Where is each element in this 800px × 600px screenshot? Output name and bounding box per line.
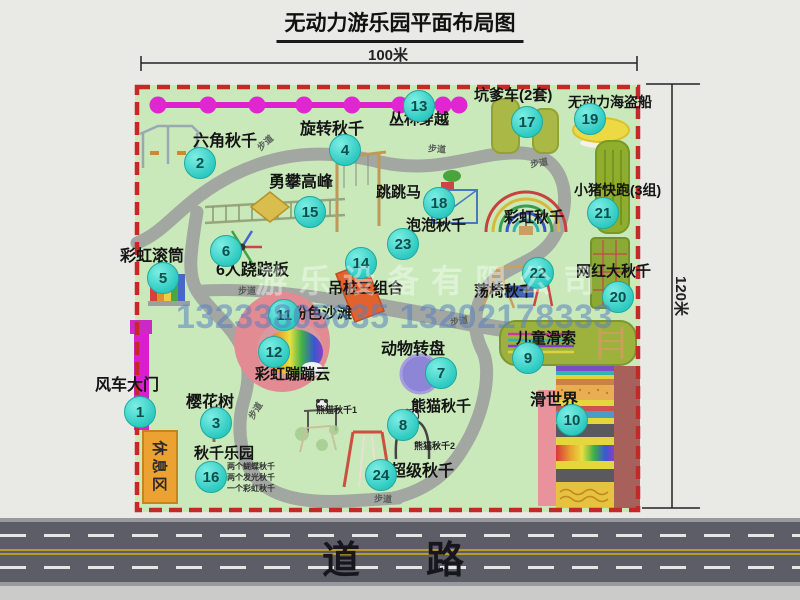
map-marker-16: 16	[195, 461, 227, 493]
swing-note-line: 一个彩虹秋千	[227, 483, 275, 494]
attraction-label: 小猪快跑(3组)	[574, 183, 661, 198]
map-marker-22: 22	[522, 257, 554, 289]
map-marker-10: 10	[556, 404, 588, 436]
map-marker-7: 7	[425, 357, 457, 389]
path-walkway-label: 步道	[529, 155, 549, 171]
map-marker-13: 13	[403, 90, 435, 122]
map-marker-12: 12	[258, 336, 290, 368]
rest-area: 休息区	[142, 430, 178, 504]
attraction-label: 彩虹滚筒	[120, 248, 184, 266]
path-walkway-label: 步道	[245, 399, 266, 421]
map-marker-24: 24	[365, 459, 397, 491]
map-marker-14: 14	[345, 247, 377, 279]
path-walkway-label: 步道	[238, 284, 256, 297]
sub-note: 熊猫秋千2	[414, 439, 455, 452]
attraction-label: 超级秋千	[390, 463, 454, 481]
map-marker-20: 20	[602, 281, 634, 313]
screenshot-stage: 无动力游乐园平面布局图 100米 120米	[0, 0, 800, 600]
attraction-label: 吊桩三组合	[328, 281, 403, 298]
path-walkway-label: 步道	[254, 132, 276, 154]
dimension-height-label: 120米	[671, 276, 692, 316]
map-marker-3: 3	[200, 407, 232, 439]
swing-note-line: 两个蝴蝶秋千	[227, 461, 275, 472]
map-marker-19: 19	[574, 103, 606, 135]
attraction-label: 旋转秋千	[300, 121, 364, 139]
attraction-label: 网红大秋千	[576, 264, 651, 281]
path-walkway-label: 步道	[374, 492, 392, 506]
attraction-label: 动物转盘	[381, 341, 445, 359]
page-title: 无动力游乐园平面布局图	[277, 7, 524, 43]
map-marker-11: 11	[268, 299, 300, 331]
map-marker-18: 18	[423, 187, 455, 219]
attraction-label: 勇攀高峰	[269, 174, 333, 192]
attraction-label: 熊猫秋千	[411, 399, 471, 416]
dimension-width-label: 100米	[368, 44, 408, 65]
attraction-label: 荡椅秋千	[474, 284, 534, 301]
path-walkway-label: 步道	[428, 141, 447, 155]
path-walkway-label: 步道	[449, 313, 469, 328]
map-marker-9: 9	[512, 342, 544, 374]
attraction-label: 泡泡秋千	[406, 218, 466, 235]
attraction-label: 粉色沙滩	[292, 306, 352, 323]
map-marker-17: 17	[511, 106, 543, 138]
map-marker-5: 5	[147, 262, 179, 294]
attraction-label: 跳跳马	[376, 185, 421, 202]
map-marker-21: 21	[587, 197, 619, 229]
attraction-label: 彩虹秋千	[504, 210, 564, 227]
sub-note: 熊猫秋千1	[316, 403, 357, 416]
attraction-label: 坑爹车(2套)	[474, 88, 552, 105]
rest-area-label: 休息区	[150, 440, 171, 494]
map-marker-1: 1	[124, 396, 156, 428]
attraction-label: 彩虹蹦蹦云	[255, 367, 330, 384]
attraction-label: 风车大门	[95, 377, 159, 395]
map-marker-4: 4	[329, 134, 361, 166]
swing-note-list: 两个蝴蝶秋千两个发光秋千一个彩虹秋千	[227, 461, 275, 494]
map-marker-8: 8	[387, 409, 419, 441]
map-marker-2: 2	[184, 147, 216, 179]
map-marker-23: 23	[387, 228, 419, 260]
map-marker-6: 6	[210, 235, 242, 267]
swing-note-line: 两个发光秋千	[227, 472, 275, 483]
map-marker-15: 15	[294, 196, 326, 228]
